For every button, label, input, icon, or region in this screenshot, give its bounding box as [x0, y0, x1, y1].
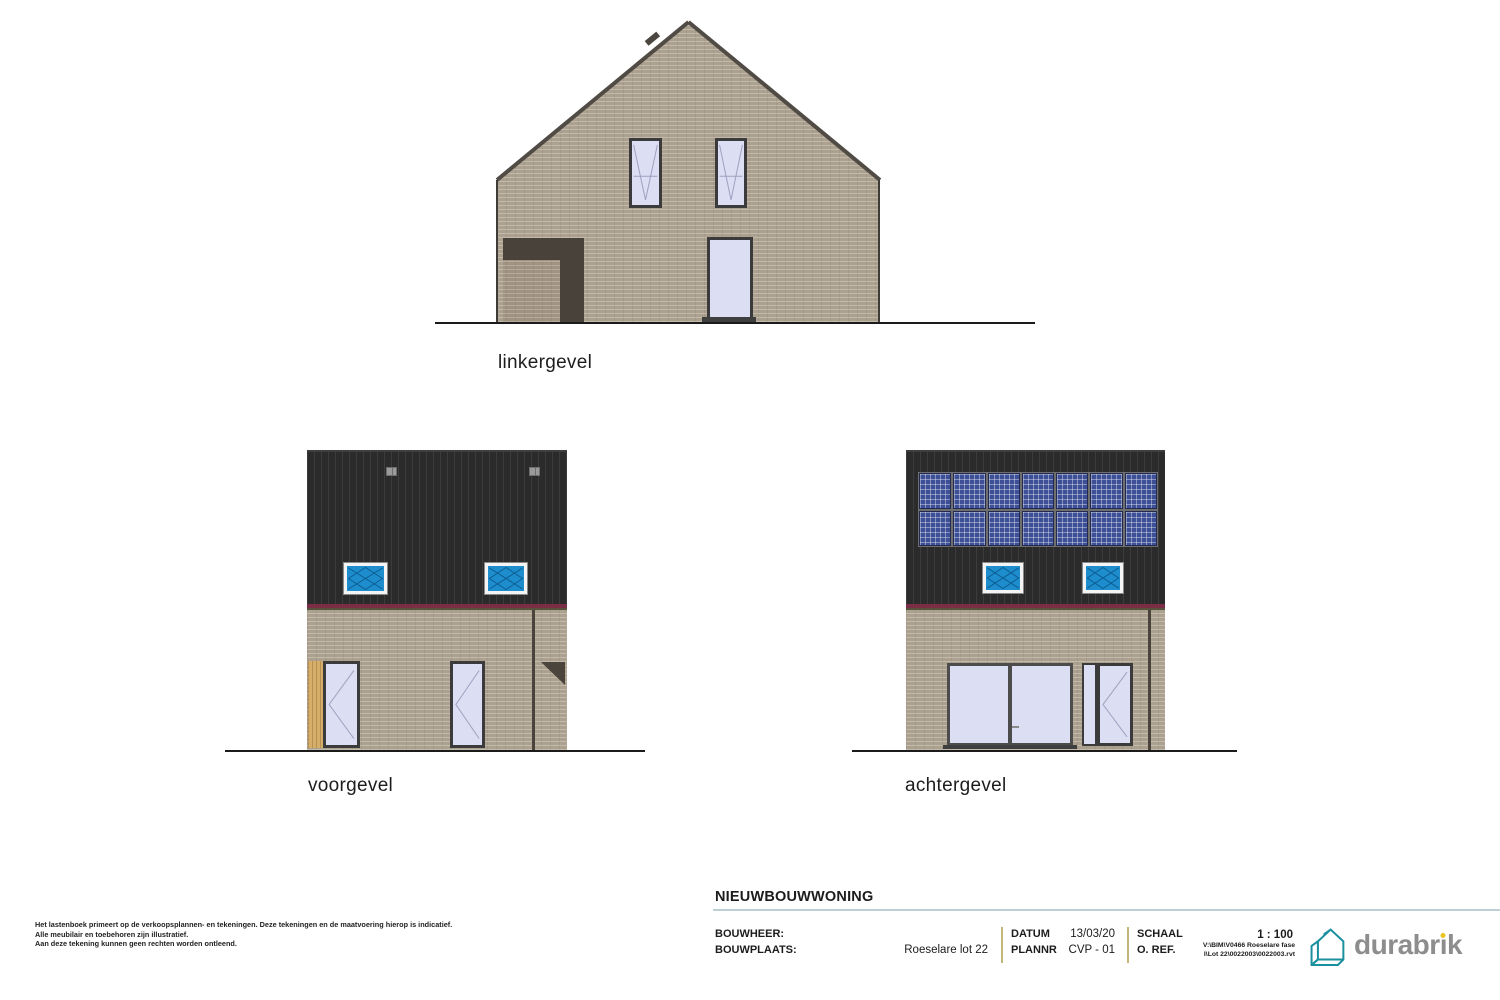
roof-window: [344, 563, 387, 594]
solar-panel: [1090, 511, 1122, 547]
solar-panel: [1056, 473, 1088, 509]
datum-value: 13/03/20: [1043, 928, 1115, 940]
schaal-value: 1 : 100: [1213, 929, 1293, 941]
solar-panel-array: [918, 472, 1158, 547]
solar-panel: [1022, 473, 1054, 509]
roof-window: [983, 563, 1023, 593]
schaal-label: SCHAAL: [1137, 928, 1183, 940]
front-door: [323, 661, 360, 748]
bouwheer-label: BOUWHEER:: [715, 928, 784, 940]
disclaimer-text: Het lastenboek primeert op de verkoopspl…: [35, 920, 452, 949]
solar-panel: [953, 473, 985, 509]
title-block: NIEUWBOUWWONING BOUWHEER: BOUWPLAATS: Ro…: [713, 885, 1500, 990]
disclaimer-line-1: Het lastenboek primeert op de verkoopspl…: [35, 920, 452, 930]
ground-line: [852, 750, 1237, 752]
recess-inner-wall: [503, 260, 560, 322]
logo-i-dot: [1441, 933, 1446, 938]
solar-panel: [1125, 473, 1157, 509]
project-title: NIEUWBOUWWONING: [715, 889, 873, 905]
file-path-line-1: V:\BIM\V0466 Roeselare fase: [1153, 942, 1295, 949]
window: [715, 138, 747, 208]
plannr-value: CVP - 01: [1043, 944, 1115, 956]
roof-vent: [645, 32, 660, 46]
elevation-linkergevel: linkergevel: [435, 18, 1035, 383]
bouwplaats-label: BOUWPLAATS:: [715, 944, 797, 956]
solar-panel: [953, 511, 985, 547]
ground-line: [435, 322, 1035, 324]
wall-edge-right: [878, 180, 880, 322]
roof-vent: [386, 467, 397, 476]
disclaimer-line-3: Aan deze tekening kunnen geen rechten wo…: [35, 939, 452, 949]
solar-panel: [1090, 473, 1122, 509]
solar-panel: [919, 473, 951, 509]
solar-panel: [919, 511, 951, 547]
door: [450, 661, 485, 748]
wall-joint: [1148, 610, 1151, 750]
solar-panel: [1056, 511, 1088, 547]
durabrik-wordmark: durabrık: [1354, 931, 1462, 959]
slider-mullion: [1008, 666, 1012, 743]
solar-panel: [1022, 511, 1054, 547]
roof-window: [485, 563, 527, 594]
window: [629, 138, 662, 208]
elevation-label: linkergevel: [498, 352, 592, 374]
elevation-label: achtergevel: [905, 775, 1007, 797]
ground-line: [225, 750, 645, 752]
wood-panel: [308, 661, 323, 748]
divider: [1127, 927, 1129, 963]
recess-band-vertical: [560, 238, 584, 323]
durabrik-house-icon: [1307, 921, 1347, 969]
solar-panel: [988, 511, 1020, 547]
divider: [1001, 927, 1003, 963]
title-underline: [713, 909, 1500, 911]
elevation-achtergevel: achtergevel: [850, 440, 1245, 805]
wall-joint: [532, 610, 535, 750]
door: [707, 237, 753, 320]
durabrik-logo: durabrık: [1307, 921, 1462, 969]
slider-handle: [1012, 726, 1019, 728]
door-sill: [943, 745, 1077, 749]
wall-edge-left: [496, 180, 498, 322]
elevation-label: voorgevel: [308, 775, 393, 797]
roof-window: [1083, 563, 1123, 593]
sliding-glass-door: [947, 663, 1073, 746]
roof-vent: [529, 467, 540, 476]
disclaimer-line-2: Alle meubilair en toebehoren zijn illust…: [35, 930, 452, 940]
solar-panel: [988, 473, 1020, 509]
file-path-line-2: I\Lot 22\0022003\0022003.rvt: [1153, 951, 1295, 958]
solar-panel: [1125, 511, 1157, 547]
elevation-voorgevel: voorgevel: [225, 440, 645, 805]
glazed-door: [1097, 663, 1133, 746]
location-value: Roeselare lot 22: [863, 944, 988, 956]
fixed-pane: [1082, 663, 1097, 746]
